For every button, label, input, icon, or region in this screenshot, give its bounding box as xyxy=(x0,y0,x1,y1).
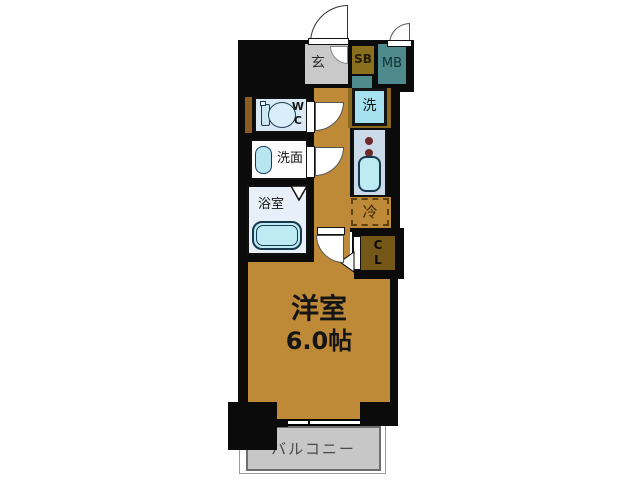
bathroom-label: 浴室 xyxy=(258,198,284,212)
meter-box-door xyxy=(387,40,412,47)
entrance-label: 玄 xyxy=(311,56,325,71)
refrigerator-space: 冷 xyxy=(351,198,389,226)
washing-machine: 洗 xyxy=(352,88,387,126)
room-door xyxy=(317,227,345,235)
kitchen-counter xyxy=(352,128,387,197)
stove-burner-icon xyxy=(365,137,373,145)
meter-box-label: MB xyxy=(382,57,402,71)
pillar-left xyxy=(228,402,277,450)
toilet-door xyxy=(306,101,315,133)
pipe-space xyxy=(245,97,252,133)
shoe-box-label: SB xyxy=(354,53,372,66)
shoe-box-shelf xyxy=(352,76,372,88)
washing-machine-label: 洗 xyxy=(363,99,377,114)
toilet-button-icon xyxy=(260,101,266,106)
main-room-label: 洋室 6.0帖 xyxy=(248,292,390,356)
toilet-label: WC xyxy=(292,100,304,128)
floor-plan: バルコニー 玄 SB MB WC 洗面 浴室 xyxy=(0,0,640,480)
washbasin-icon xyxy=(255,146,272,174)
washroom-door xyxy=(306,146,315,178)
washroom-label: 洗面 xyxy=(277,152,303,166)
bathtub-inner-line xyxy=(256,225,298,246)
pillar-right xyxy=(360,402,395,426)
bathtub-icon xyxy=(252,221,302,250)
main-room-name: 洋室 xyxy=(248,292,390,326)
closet: CL xyxy=(361,236,395,270)
entrance-floor: 玄 xyxy=(305,44,348,84)
shoe-box: SB xyxy=(352,46,374,74)
wall-notch xyxy=(277,419,288,427)
kitchen-sink-icon xyxy=(358,156,381,192)
washroom: 洗面 xyxy=(250,139,308,180)
window-center-line xyxy=(308,421,310,424)
closet-label: CL xyxy=(374,238,383,268)
entrance-door xyxy=(308,38,349,45)
meter-box: MB xyxy=(378,44,406,84)
entrance-inner-door-arc xyxy=(330,46,348,64)
bathroom-folding-door-icon xyxy=(289,184,309,202)
toilet-room: WC xyxy=(254,97,308,133)
main-room-size: 6.0帖 xyxy=(248,326,390,356)
refrigerator-label: 冷 xyxy=(362,204,377,221)
